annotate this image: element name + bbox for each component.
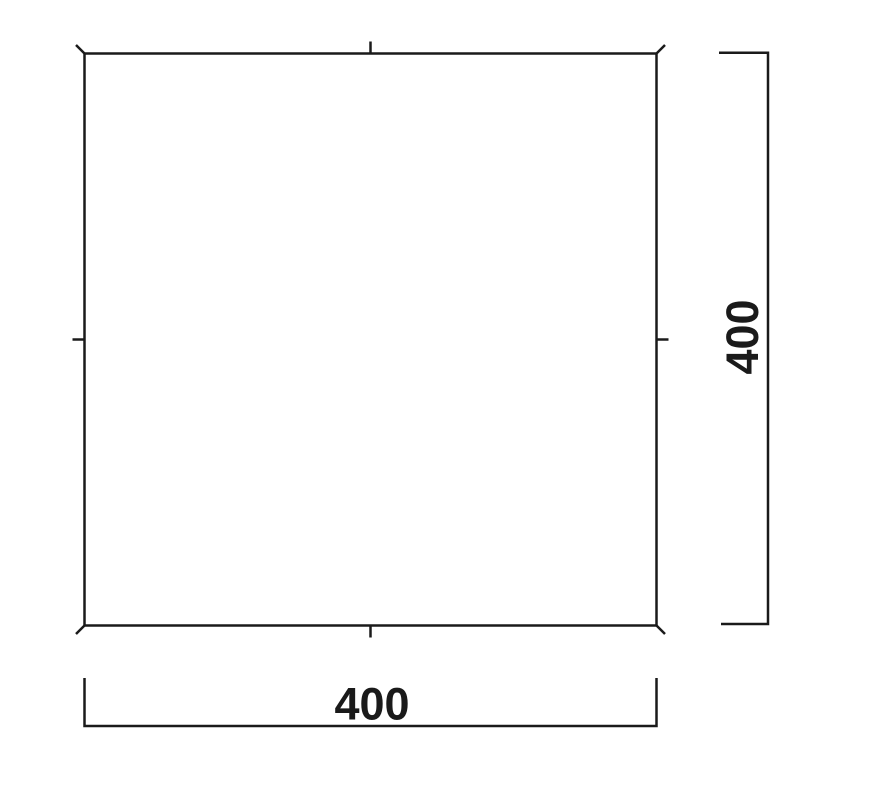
svg-text:400: 400 <box>334 678 409 729</box>
svg-text:400: 400 <box>717 299 768 374</box>
